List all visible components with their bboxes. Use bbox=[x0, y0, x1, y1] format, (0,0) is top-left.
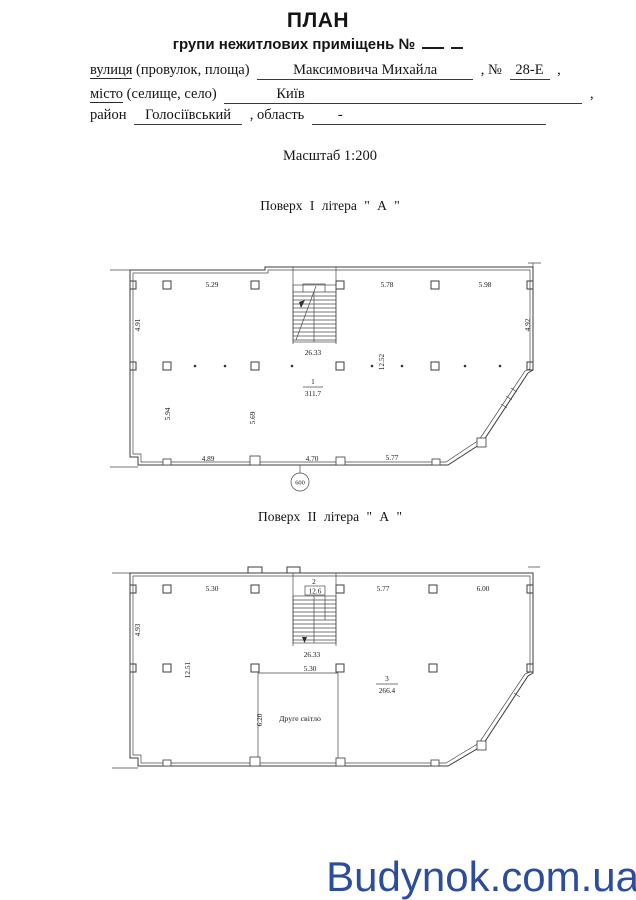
floor1-walls bbox=[110, 263, 541, 467]
dim-label: 26.33 bbox=[304, 650, 321, 659]
floor2-bottom-windows bbox=[163, 741, 486, 766]
city-value-field: Київ bbox=[224, 85, 582, 104]
dim-label: 4.93 bbox=[133, 623, 142, 636]
dim-label: 5.30 bbox=[206, 584, 219, 593]
room-number: 2 bbox=[312, 577, 316, 586]
dim-label: 6.20 bbox=[255, 713, 264, 726]
floor2-walls bbox=[112, 567, 540, 768]
room-area: 266.4 bbox=[379, 686, 396, 695]
district-label: район bbox=[90, 107, 126, 123]
dim-label: 5.77 bbox=[386, 453, 399, 462]
floor-plan-1: 600 5.29 5.78 5.98 4.91 4.92 26.33 12.52… bbox=[110, 256, 550, 496]
dim-label: 5.98 bbox=[479, 280, 492, 289]
form-row-city: місто (селище, село) Київ , bbox=[90, 85, 594, 104]
dim-label: 4.70 bbox=[306, 454, 319, 463]
dim-label: 5.30 bbox=[304, 664, 317, 673]
floor-plan-2: 5.30 5.77 6.00 4.93 26.33 12.51 5.30 6.2… bbox=[110, 558, 550, 788]
comma: , bbox=[590, 86, 594, 102]
floor2-dimensions: 5.30 5.77 6.00 4.93 26.33 12.51 5.30 6.2… bbox=[133, 584, 490, 726]
subtitle-blank-line bbox=[422, 36, 444, 49]
floor1-columns bbox=[163, 281, 501, 370]
floor2-stair-room-label: 2 12.6 bbox=[309, 577, 322, 596]
floor1-stairs bbox=[293, 267, 336, 344]
scale-label: Масштаб 1:200 bbox=[110, 148, 550, 165]
axis-label: 600 bbox=[295, 480, 305, 487]
number-value-field: 28-Е bbox=[510, 61, 550, 80]
dim-label: 5.78 bbox=[381, 280, 394, 289]
room-area: 12.6 bbox=[309, 587, 322, 596]
dim-label: 5.69 bbox=[248, 411, 257, 424]
floor1-bottom-windows bbox=[163, 388, 517, 465]
floor1-dimensions: 5.29 5.78 5.98 4.91 4.92 26.33 12.52 5.9… bbox=[133, 280, 532, 463]
street-value-field: Максимовича Михайла bbox=[257, 61, 473, 80]
district-value-field: Голосіївський bbox=[134, 106, 242, 125]
dim-label: 5.29 bbox=[206, 280, 219, 289]
dim-label: 4.91 bbox=[133, 318, 142, 331]
floor1-room-label: 1 311.7 bbox=[303, 377, 323, 398]
form-row-district: район Голосіївський , область - bbox=[90, 106, 550, 125]
street-label: вулиця (провулок, площа) bbox=[90, 62, 250, 79]
page-title: ПЛАН bbox=[0, 9, 636, 33]
dim-label: 5.77 bbox=[377, 584, 390, 593]
document-page: ПЛАН групи нежитлових приміщень № вулиця… bbox=[0, 0, 636, 900]
floor2-columns bbox=[163, 585, 437, 672]
city-label: місто (селище, село) bbox=[90, 86, 217, 103]
dim-label: 12.52 bbox=[377, 353, 386, 370]
void-label: Друге світло bbox=[279, 714, 321, 723]
subtitle-text: групи нежитлових приміщень № bbox=[173, 36, 416, 53]
room-number: 1 bbox=[311, 377, 315, 386]
region-label: , область bbox=[250, 107, 305, 123]
floor1-axis-marker: 600 bbox=[291, 465, 309, 491]
dim-label: 4.89 bbox=[202, 454, 215, 463]
dim-label: 4.92 bbox=[523, 318, 532, 331]
subtitle-blank-line bbox=[451, 36, 463, 49]
dim-label: 6.00 bbox=[477, 584, 490, 593]
watermark-text: Budynok.com.ua bbox=[326, 853, 636, 900]
number-label: , № bbox=[481, 62, 502, 78]
comma: , bbox=[557, 62, 561, 78]
room-area: 311.7 bbox=[305, 389, 321, 398]
page-subtitle: групи нежитлових приміщень № bbox=[0, 36, 636, 53]
floor1-caption: Поверх I літера " А " bbox=[110, 198, 550, 214]
room-number: 3 bbox=[385, 674, 389, 683]
region-value-field: - bbox=[312, 106, 546, 125]
floor2-room-label: 3 266.4 bbox=[376, 674, 398, 695]
dim-label: 26.33 bbox=[305, 348, 322, 357]
dim-label: 5.94 bbox=[163, 407, 172, 420]
dim-label: 12.51 bbox=[183, 661, 192, 678]
form-row-street: вулиця (провулок, площа) Максимовича Мих… bbox=[90, 61, 561, 80]
floor2-caption: Поверх II літера " А " bbox=[110, 509, 550, 525]
